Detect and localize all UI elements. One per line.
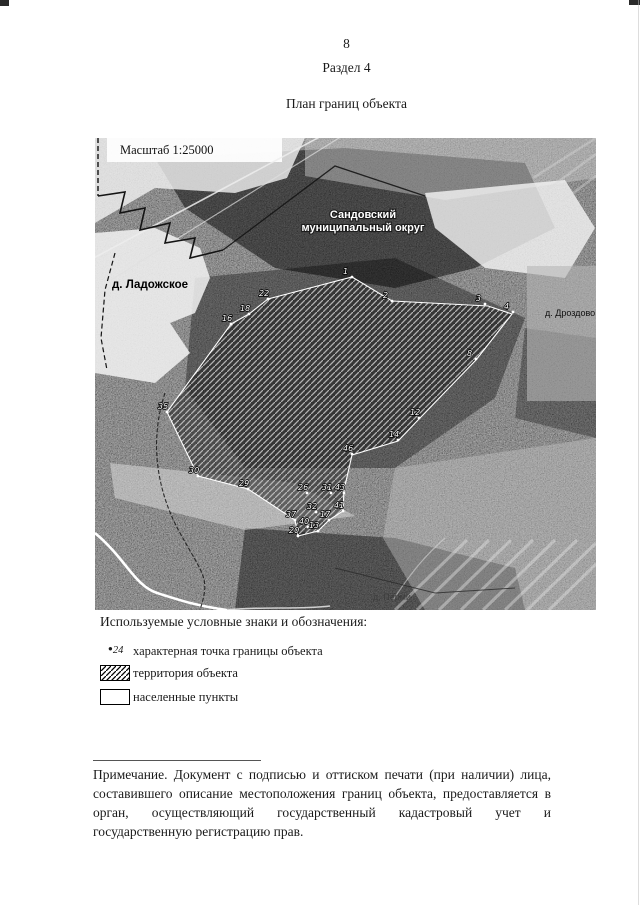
boundary-point-label: 35: [158, 402, 168, 411]
district-label-line2: муниципальный округ: [302, 222, 425, 234]
boundary-point-label: 29: [239, 479, 249, 488]
village-label-ladozhskoe: д. Ладожское: [112, 279, 188, 291]
boundary-point-icon: ●24: [108, 644, 123, 656]
empty-box-icon: [100, 689, 130, 705]
section-title: Раздел 4: [93, 60, 600, 76]
boundary-point-marker: [351, 453, 354, 456]
village-label-permi: д. Перми: [373, 592, 411, 602]
boundary-point-label: 2: [383, 291, 388, 300]
footnote-text: Примечание. Документ с подписью и оттиск…: [93, 765, 551, 842]
boundary-point-label: 17: [320, 510, 331, 519]
boundary-point-marker: [391, 300, 394, 303]
boundary-point-label: 30: [189, 466, 199, 475]
boundary-point-label: 37: [286, 510, 297, 519]
boundary-point-marker: [197, 475, 200, 478]
boundary-point-label: 40: [299, 517, 309, 526]
boundary-point-label: 43: [335, 483, 345, 492]
boundary-point-marker: [328, 519, 331, 522]
boundary-point-marker: [418, 417, 421, 420]
boundary-point-marker: [475, 358, 478, 361]
boundary-point-marker: [267, 298, 270, 301]
boundary-point-marker: [315, 511, 318, 514]
boundary-point-label: 32: [307, 502, 317, 511]
legend-item-label: характерная точка границы объекта: [133, 644, 323, 659]
boundary-point-marker: [351, 276, 354, 279]
village-label-drozdovo: д. Дроздово: [545, 308, 595, 318]
footnote: Примечание. Документ с подписью и оттиск…: [93, 760, 551, 842]
boundary-point-marker: [317, 530, 320, 533]
boundary-point-marker: [342, 510, 345, 513]
boundary-point-marker: [166, 411, 169, 414]
boundary-point-label: 8: [467, 349, 472, 358]
boundary-point-marker: [330, 492, 333, 495]
boundary-point-label: 14: [389, 430, 399, 439]
boundary-point-label: 1: [343, 267, 348, 276]
boundary-point-label: 13: [309, 521, 319, 530]
boundary-point-label: 31: [322, 483, 332, 492]
boundary-point-marker: [397, 439, 400, 442]
legend-heading: Используемые условные знаки и обозначени…: [100, 614, 367, 630]
boundary-point-marker: [294, 519, 297, 522]
boundary-point-label: 22: [259, 289, 269, 298]
footnote-rule: [93, 760, 261, 763]
boundary-point-marker: [247, 488, 250, 491]
map-scale-label: Масштаб 1:25000: [120, 143, 213, 157]
boundary-point-marker: [512, 311, 515, 314]
boundary-point-label: 3: [476, 294, 481, 303]
boundary-point-marker: [306, 492, 309, 495]
district-label-line1: Сандовский: [330, 209, 396, 221]
scan-artifact-top-left: [0, 0, 9, 6]
legend-item-label: населенные пункты: [133, 690, 238, 705]
boundary-point-label: 26: [298, 483, 308, 492]
boundary-point-label: 12: [410, 408, 420, 417]
boundary-point-marker: [343, 492, 346, 495]
boundary-point-label: 4: [504, 302, 509, 311]
boundary-point-marker: [248, 313, 251, 316]
boundary-point-marker: [230, 323, 233, 326]
boundary-point-label: 16: [222, 314, 232, 323]
boundary-point-marker: [297, 535, 300, 538]
page-number: 8: [93, 36, 600, 52]
boundary-point-label: 18: [240, 304, 250, 313]
legend-point-number: 24: [113, 645, 124, 656]
boundary-point-label: 41: [334, 501, 344, 510]
boundary-point-label: 20: [289, 526, 299, 535]
hatched-box-icon: [100, 665, 130, 681]
legend-item-label: территория объекта: [133, 666, 238, 681]
boundary-point-label: 46: [343, 444, 353, 453]
page-title: План границ объекта: [93, 96, 600, 112]
boundary-point-marker: [484, 303, 487, 306]
scan-edge-line: [638, 0, 639, 905]
boundary-plan-map: 1234812144643312641321737401320293035161…: [95, 138, 596, 610]
